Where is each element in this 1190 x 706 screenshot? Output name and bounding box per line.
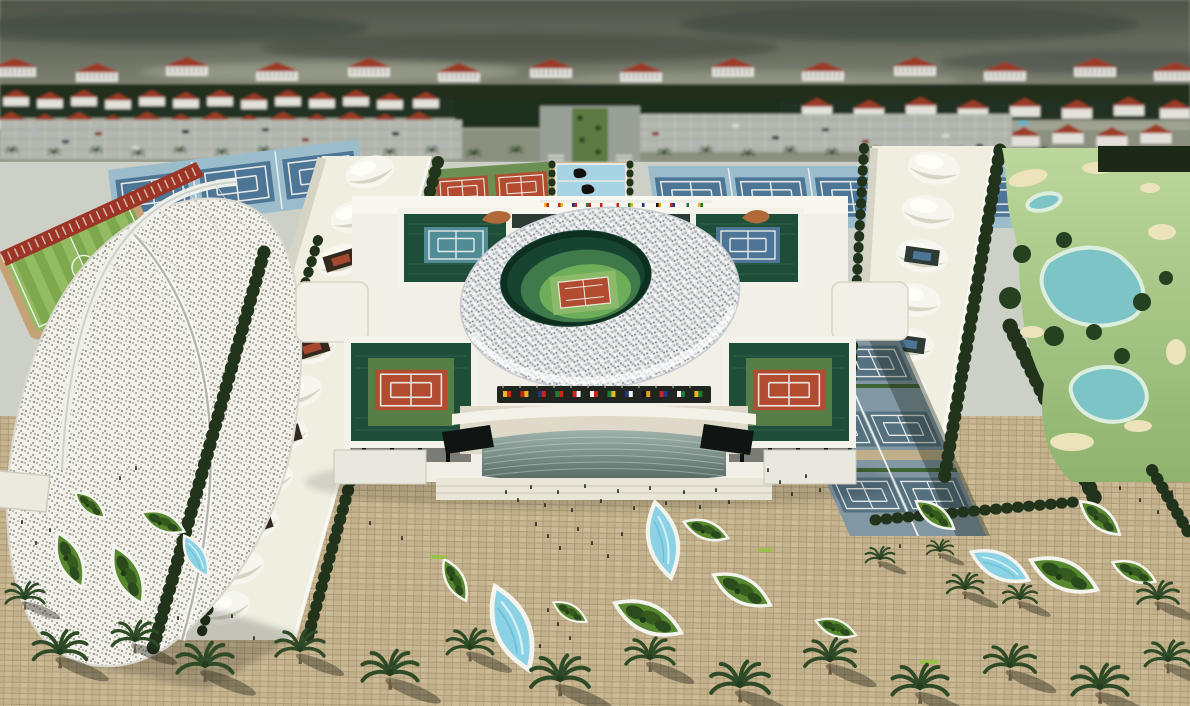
tree-band-top-right — [1098, 146, 1190, 172]
flag — [625, 391, 629, 397]
flag — [573, 391, 577, 397]
stadium-wing-east — [832, 282, 908, 340]
flag — [701, 203, 704, 207]
flag — [561, 203, 564, 207]
flag — [684, 203, 687, 207]
flag — [664, 391, 668, 397]
flag — [544, 203, 547, 207]
flag — [603, 203, 606, 207]
flag — [600, 203, 603, 207]
flag — [555, 391, 559, 397]
flag — [617, 203, 620, 207]
corner-canopy-southwest — [0, 470, 50, 512]
flag — [575, 203, 578, 207]
flag — [507, 391, 511, 397]
flag — [677, 391, 681, 397]
entrance-steps — [436, 478, 772, 500]
flag — [589, 203, 592, 207]
centre-court — [550, 270, 620, 315]
stadium-wing-west — [296, 282, 368, 342]
flag — [520, 391, 524, 397]
flag — [547, 203, 550, 207]
flag — [607, 391, 611, 397]
flag — [687, 203, 690, 207]
flag — [586, 203, 589, 207]
flag — [629, 391, 633, 397]
glass-facade — [482, 430, 726, 484]
flag — [577, 391, 581, 397]
flag — [645, 203, 648, 207]
flag — [698, 391, 702, 397]
side-pavilion-east — [764, 450, 856, 484]
flag — [594, 391, 598, 397]
flag — [590, 391, 594, 397]
flag — [698, 203, 701, 207]
flag — [694, 391, 698, 397]
flag — [670, 203, 673, 207]
background-district — [0, 0, 1190, 166]
flag — [659, 203, 662, 207]
flag — [642, 391, 646, 397]
flag — [673, 203, 676, 207]
stadium — [296, 194, 908, 510]
flag — [542, 391, 546, 397]
rendering-stage: Aerial rendering of a tennis-stadium spo… — [0, 0, 1190, 706]
flag — [558, 203, 561, 207]
flag — [614, 203, 617, 207]
side-pavilion-west — [334, 450, 426, 484]
flag — [559, 391, 563, 397]
aerial-rendering: Aerial rendering of a tennis-stadium spo… — [0, 0, 1190, 706]
flag — [503, 391, 507, 397]
flag — [611, 391, 615, 397]
flag — [524, 391, 528, 397]
flag — [646, 391, 650, 397]
flag — [628, 203, 631, 207]
flag — [538, 391, 542, 397]
flag — [572, 203, 575, 207]
parking-lot-left — [0, 120, 462, 160]
flag — [642, 203, 645, 207]
flag — [631, 203, 634, 207]
flag — [660, 391, 664, 397]
flag — [656, 203, 659, 207]
flag — [681, 391, 685, 397]
entry-road — [540, 106, 640, 166]
